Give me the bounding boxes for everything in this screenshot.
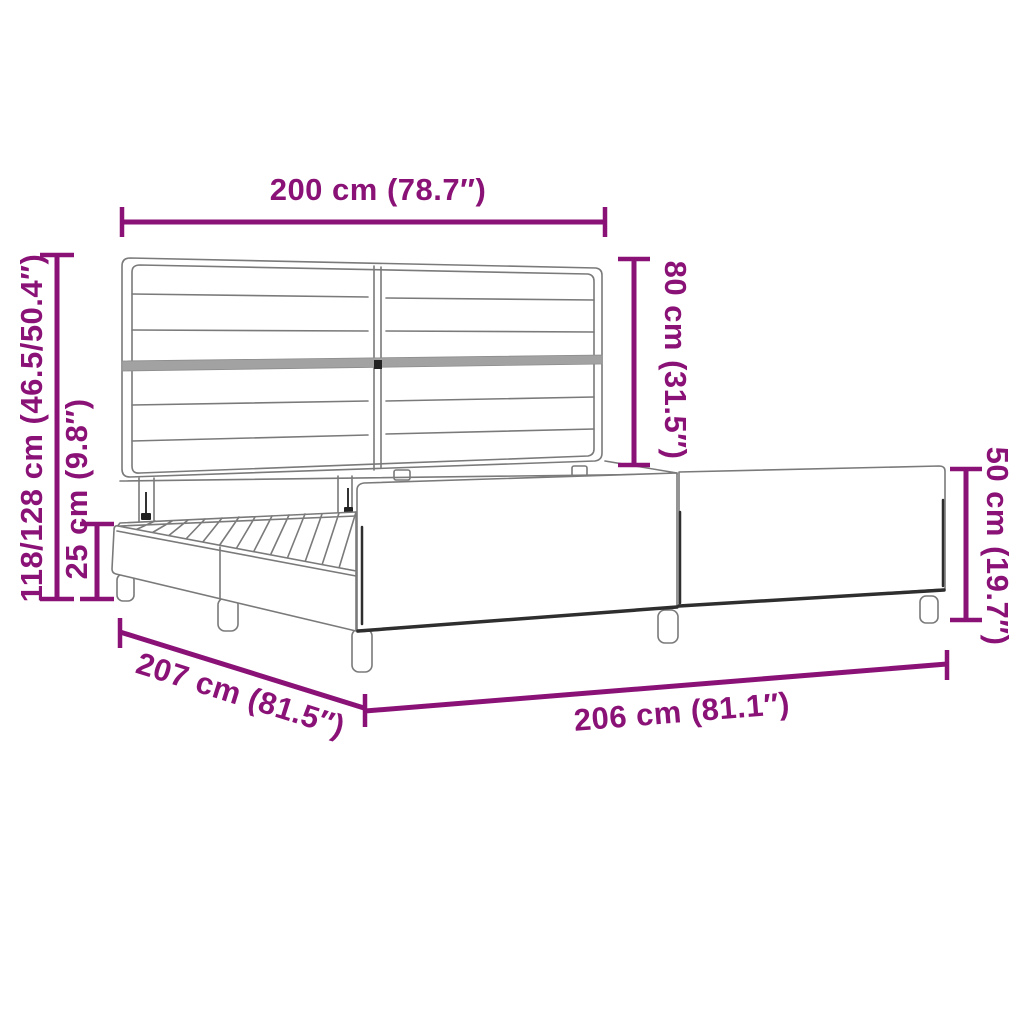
bed-frame-diagram-svg: 200 cm (78.7″) 80 cm (31.5″) 118/128 cm … <box>0 0 1024 1024</box>
front-panel-right <box>679 466 945 606</box>
dim-side-rail-height: 50 cm (19.7″) <box>950 447 1015 646</box>
front-panels <box>357 466 945 632</box>
mounting-tab <box>394 470 410 480</box>
dim-label-base-height: 25 cm (9.8″) <box>59 398 94 579</box>
headboard-stitch-line <box>386 331 594 332</box>
bed-leg <box>920 596 938 623</box>
bed-leg <box>658 610 678 643</box>
bed-leg <box>352 629 372 672</box>
dim-label-side-rail-height: 50 cm (19.7″) <box>980 447 1015 646</box>
front-panel-left <box>357 473 677 632</box>
dim-base-height: 25 cm (9.8″) <box>59 398 114 599</box>
dim-frame-width: 206 cm (81.1″) <box>365 650 947 738</box>
dim-headboard-width: 200 cm (78.7″) <box>122 172 605 237</box>
bolt-nut <box>141 513 151 520</box>
product-dimension-diagram: 200 cm (78.7″) 80 cm (31.5″) 118/128 cm … <box>0 0 1024 1024</box>
headboard <box>122 258 602 477</box>
bed-frame-drawing <box>112 258 945 672</box>
dim-headboard-height: 80 cm (31.5″) <box>618 259 693 465</box>
dim-label-headboard-width: 200 cm (78.7″) <box>270 172 487 207</box>
headboard-band-center-joint <box>374 360 382 369</box>
dim-frame-length: 207 cm (81.5″) <box>120 618 365 744</box>
headboard-stitch-line <box>132 330 368 331</box>
dim-label-total-height: 118/128 cm (46.5/50.4″) <box>14 254 49 603</box>
dim-label-headboard-height: 80 cm (31.5″) <box>658 261 693 460</box>
